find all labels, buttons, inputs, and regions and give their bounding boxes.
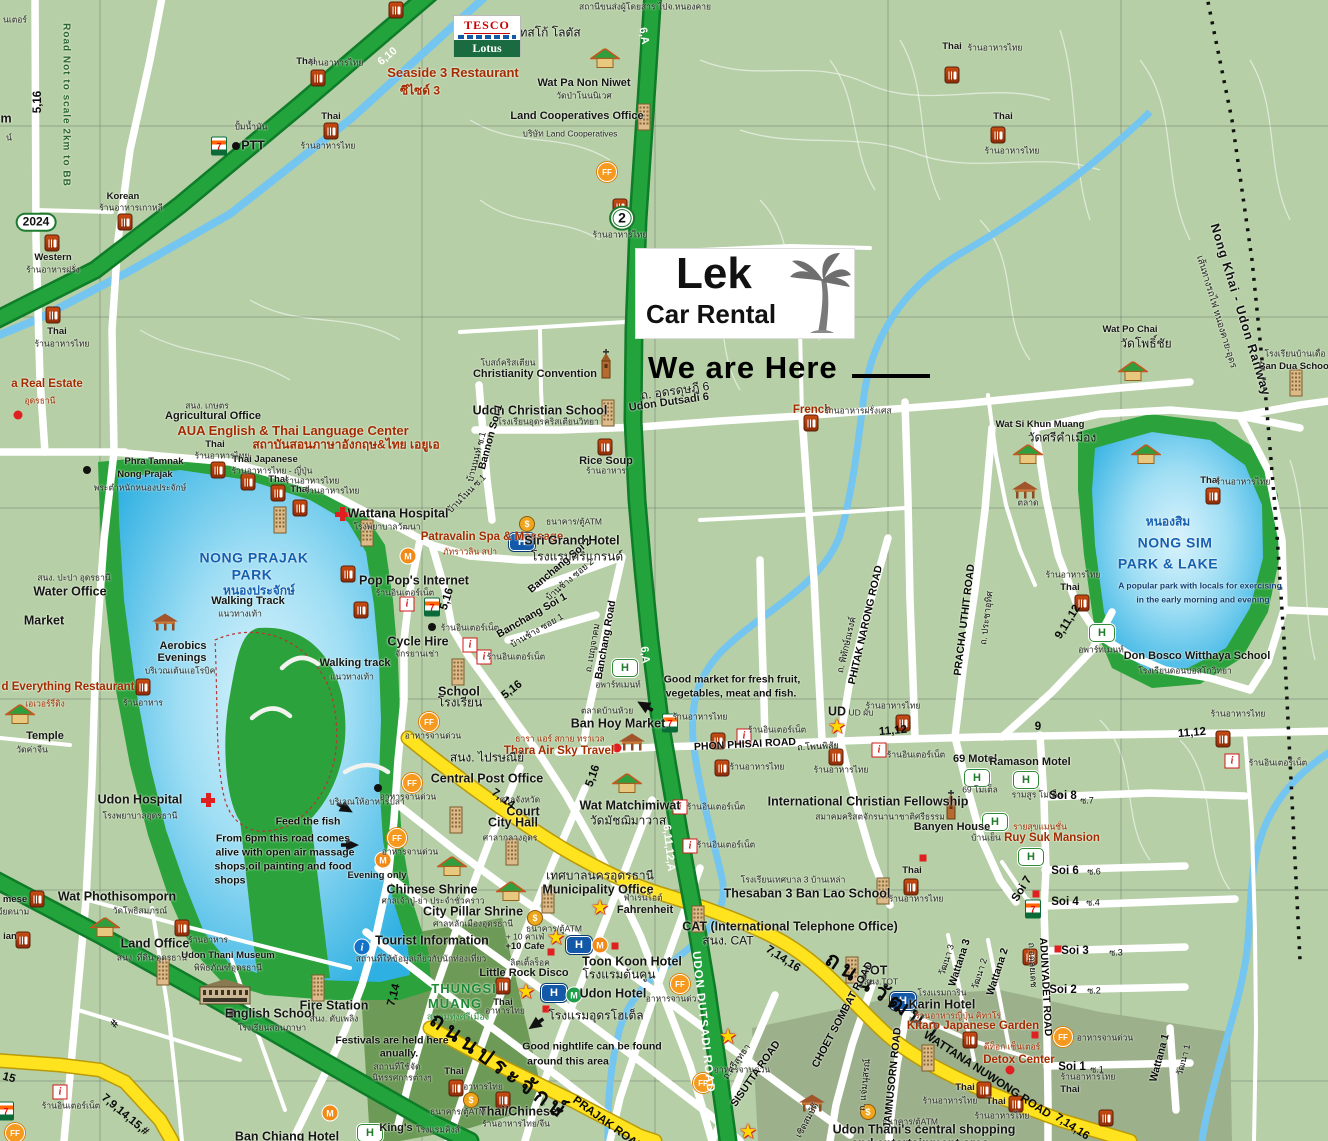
map-label: ซีไซด์ 3 <box>400 85 440 98</box>
map-label: Wattana 1 <box>1148 1033 1171 1083</box>
tesco-label: TESCO <box>464 18 510 34</box>
map-label: ถ.โพนพิสัย <box>797 741 839 753</box>
map-label: Wat Si Khun Muang <box>996 420 1085 430</box>
map-label: อาหารจานด่วน <box>405 732 462 741</box>
map-label: UD ผับ <box>848 709 873 718</box>
map-label: 5,16 <box>584 763 603 788</box>
map-label: 7,14,16 <box>764 943 803 974</box>
map-label: Soi 3 <box>1061 945 1088 957</box>
map-label: สนง. ดับเพลิง <box>310 1015 359 1024</box>
map-label: สนง. CAT <box>702 935 753 948</box>
map-label: ร้านอาหารไทย <box>866 702 921 711</box>
map-label: Soi 4 <box>1051 896 1078 908</box>
map-label: โรงแรมต้นคูน <box>582 969 655 982</box>
map-label: Christianity Convention <box>473 369 597 381</box>
we-are-here-underline <box>852 374 930 378</box>
map-label: Feed the fish <box>276 816 341 827</box>
map-label: ร้านอินเตอร์เน็ต <box>1249 759 1307 768</box>
map-label: โรงเรียนสอนภาษา <box>238 1024 306 1033</box>
map-label: PRAJAK ROAD <box>570 1094 645 1141</box>
map-label: ร้านอาหารไทย <box>730 763 785 772</box>
map-label: ร้านอาหารไทย <box>889 895 944 904</box>
map-label: ร้านอินเตอร์เน็ต <box>687 803 745 812</box>
map-label: ถ.อดุลยเดช <box>1026 942 1038 987</box>
map-label: ร้านอาหารฝรั่ง <box>26 266 80 275</box>
map-label: สนง. ไปรษณีย์ <box>450 752 524 765</box>
map-label: ร้านอาหารไทย <box>923 1097 978 1106</box>
map-label: 5,16 <box>438 586 456 611</box>
map-label: ร้านอาหารไทย <box>673 713 728 722</box>
map-label: alive with open air massage <box>216 847 355 858</box>
map-label: Kitaro Japanese Garden <box>907 1020 1039 1032</box>
map-label: ถ. ประชาอุทิศ <box>979 591 995 646</box>
map-label: ร้านอาหารไทย <box>35 340 90 349</box>
map-label: 11,12 <box>1177 726 1206 740</box>
map-label: ดีท็อก เซ็นเตอร์ <box>984 1043 1040 1052</box>
lek-car-rental-logo: Lek Car Rental <box>636 249 854 338</box>
map-label: Soi 8 <box>1049 790 1076 802</box>
map-label: King's <box>379 1123 412 1135</box>
map-label: ian <box>3 932 17 942</box>
map-label: shops <box>215 875 246 886</box>
map-label: around this area <box>527 1056 609 1067</box>
map-label: PTT <box>241 139 265 152</box>
map-label: Thai <box>1060 583 1080 593</box>
map-label: ซ.7 <box>1080 796 1094 805</box>
map-label: mese <box>3 895 27 905</box>
map-label: วัดป่าโนนนิเวศ <box>556 92 612 101</box>
map-label: UD <box>828 705 846 718</box>
map-label: 2 <box>609 206 635 231</box>
map-label: 69 โมเต็ล <box>962 786 998 795</box>
map-label: Thai <box>942 42 962 52</box>
map-label: Fahrenheit <box>617 905 673 917</box>
map-label: AUA English & Thai Language Center <box>177 424 408 438</box>
map-label: Udon Thani Museum <box>181 951 274 961</box>
map-label: Aerobics <box>159 641 206 653</box>
map-label: ธารา แอร์ สกาย ทราเวล <box>515 735 604 744</box>
map-label: โรงเรียนเทศบาล 3 บ้านเหล่า <box>741 876 846 885</box>
map-label: Water Office <box>33 585 106 598</box>
map-label: ร้านอินเตอร์เน็ต <box>376 589 434 598</box>
map-label: UDON DUTSADI ROAD <box>690 951 717 1094</box>
map-label: ร้านอาหารไทย <box>975 1112 1030 1121</box>
map-label: Thai <box>1060 1085 1080 1095</box>
map-label: 5,16 <box>32 91 44 113</box>
map-label: m <box>0 112 11 125</box>
map-label: ซ.2 <box>1087 986 1101 995</box>
map-label: From 6pm this road comes <box>216 833 350 844</box>
map-label: โรงเรียน <box>438 697 483 710</box>
map-label: Ban Chiang Hotel <box>235 1130 339 1141</box>
map-label: ร้านอินเตอร์เน็ต <box>42 1102 100 1111</box>
palm-tree-icon <box>788 251 852 336</box>
tesco-dashes <box>458 35 516 39</box>
map-label: ตลาด <box>1017 499 1038 508</box>
map-label: ร้านอาหาร <box>123 699 163 708</box>
map-label: รายสุขแมนชั่น <box>1013 823 1067 832</box>
map-label: 6,A <box>636 27 650 46</box>
map-label: Little Rock Disco <box>479 968 568 980</box>
map-label: อาหารจานด่วน <box>382 848 439 857</box>
map-label: Wat Pa Non Niwet <box>537 78 630 90</box>
map-label: ซ.4 <box>1086 898 1100 907</box>
map-label: โรงเรียนอุดรคริสเตียนวิทยา <box>497 418 599 427</box>
map-label: d Everything Restaurant <box>2 681 135 693</box>
map-label: สนง. เกษตร <box>185 402 229 411</box>
map-label: Western <box>34 253 71 263</box>
map-label: ร้านอาหารไทย <box>1046 571 1101 580</box>
map-label: บริษัท Land Cooperatives <box>523 130 618 139</box>
map-label: บ้านเย็น <box>971 834 1001 843</box>
map-label: ร้านอินเตอร์เน็ต <box>887 751 945 760</box>
map-label: อาหารจานด่วน <box>1077 1034 1134 1043</box>
map-label: Siri Grand Hotel <box>524 534 619 547</box>
map-label: Thai <box>955 1083 975 1093</box>
map-label: Market <box>24 614 64 627</box>
map-label: in the early morning and evening <box>1136 596 1269 605</box>
map-label: สถานที่ให้ข้อมูลเกี่ยวกับนักท่องเที่ยว <box>356 955 486 964</box>
map-label: 5,16 <box>499 678 524 701</box>
map-label: สถาบันสอนภาษาอังกฤษ&ไทย เอยูเอ <box>252 439 439 452</box>
map-label: Walking track <box>319 658 390 670</box>
map-label: Central Post Office <box>431 772 544 785</box>
map-label: Fire Station <box>300 999 369 1012</box>
map-label: Wattana Hospital <box>348 507 449 520</box>
map-label: Wat Phothisomporn <box>58 890 176 903</box>
map-label: ซ.6 <box>1087 867 1101 876</box>
map-label: โรงแรมการิน <box>917 989 966 998</box>
map-label: Thai <box>993 112 1013 122</box>
map-label: vegetables, meat and fish. <box>666 688 797 699</box>
map-label: Toon Koon Hotel <box>582 955 682 968</box>
map-label: 11,12 <box>878 724 907 738</box>
map-label: ร้านอาหารไทย/จีน <box>482 1120 550 1129</box>
map-label: เทศบาลนครอุดรธานี <box>546 870 654 883</box>
map-label: Udon Thani's central shopping <box>833 1123 1016 1136</box>
map-label: 7,14 <box>385 983 402 1008</box>
map-label: Nong Prajak <box>117 470 172 480</box>
map-label: แนวทางเท้า <box>218 610 262 619</box>
map-label: Tourist Information <box>375 934 489 947</box>
map-label: ซ.3 <box>1109 948 1123 957</box>
map-label: ร้านอินเตอร์เน็ต <box>697 841 755 850</box>
map-label: ร้านอาหารไทย <box>1061 1073 1116 1082</box>
map-label: Good market for fresh fruit, <box>664 674 801 685</box>
map-label: shops,oil painting and food <box>214 861 351 872</box>
map-label: Road Not to scale 2km to BB <box>60 23 71 187</box>
map-label: Udon Hospital <box>98 793 183 806</box>
map-label: ADUNYADET ROAD <box>1037 937 1053 1036</box>
map-canvas: iiiiiiiii77777HHHHHHHHHHHMMMMMFFFFFFFFFF… <box>0 0 1328 1141</box>
map-label: เวียดนาม <box>0 908 29 917</box>
map-label: 9,11,12 <box>1053 603 1083 641</box>
map-label: โรงแรมคิงส์ <box>416 1126 460 1135</box>
map-label: ถ. แจ่มนุสรณ์ <box>858 1059 873 1112</box>
map-label: Walking Track <box>211 596 285 608</box>
map-label: วัดโพธิ์ชัย <box>1120 338 1171 351</box>
map-label: ธนาคาร/ตู้ATM <box>430 1108 486 1117</box>
map-label: Festivals are held here <box>335 1035 448 1046</box>
map-label: ร้านอาหารฝรั่งเศส <box>824 407 891 416</box>
map-label: City Hall <box>488 816 538 829</box>
map-label: โบสถ์คริสเตียน <box>481 359 536 368</box>
map-label: พิพิธภัณฑ์อุดรธานี <box>194 964 262 973</box>
map-label: วัดศรีคำเมือง <box>1028 432 1096 445</box>
map-label: ร้านอาหารไทย <box>309 59 364 68</box>
map-label: Thai <box>444 1067 464 1077</box>
map-label: แนวทางเท้า <box>330 673 374 682</box>
map-label: ลิตเติ้ลร็อค <box>510 959 550 968</box>
map-label: +10 Cafe <box>505 942 544 952</box>
map-label: Thai <box>321 112 341 122</box>
map-label: Temple <box>26 731 64 743</box>
map-label: NONG PRAJAK <box>200 551 309 566</box>
map-label: 9 <box>1035 721 1041 733</box>
map-label: ร้านอาหาร <box>586 467 626 476</box>
map-label: Cycle Hire <box>387 635 448 648</box>
we-are-here-label: We are Here <box>648 350 930 386</box>
map-label: Soi 1 <box>1058 1061 1085 1073</box>
lek-logo-title: Lek <box>676 249 752 299</box>
map-label: สถานที่ใช้จัด <box>374 1063 421 1072</box>
map-label: ร้านอาหารไทย <box>1211 710 1266 719</box>
map-label: Thai <box>902 866 922 876</box>
map-label: City Pillar Shrine <box>423 905 523 918</box>
map-label: ร้านอินเตอร์เน็ต <box>748 726 806 735</box>
map-label: ตลาดบ้านห้วย <box>581 707 633 716</box>
map-label: วัดค่าจีน <box>16 746 48 755</box>
map-label: Land Office <box>121 937 190 950</box>
map-label: ร้านอาหารไทย <box>968 44 1023 53</box>
map-label: 15 <box>1 1071 16 1086</box>
map-label: anually. <box>380 1048 418 1059</box>
lotus-label: Lotus <box>454 40 520 57</box>
map-label: PARK <box>232 568 273 583</box>
map-label: Korean <box>107 192 140 202</box>
map-label: ร้านอาหารไทย <box>814 766 869 775</box>
map-label: ร้านอาหารไทย <box>593 231 648 240</box>
map-label: 7,14,16 <box>1053 1111 1092 1141</box>
map-label: Seaside 3 Restaurant <box>387 66 519 80</box>
map-label: Soi 7 <box>1010 874 1035 904</box>
map-label: 6,11,12,A <box>660 824 676 872</box>
map-label: Agricultural Office <box>165 411 261 423</box>
map-label: Wattana 2 <box>985 947 1011 997</box>
map-label: ฟ่าเรนไฮต์ <box>623 894 662 903</box>
map-label: 6,A <box>637 646 650 664</box>
map-label: Pop Pop's Internet <box>359 574 469 587</box>
map-label: Land Cooperatives Office <box>510 111 643 123</box>
map-label: Thai Japanese <box>232 455 297 465</box>
map-label: ธนาคาร/ตู้ATM <box>546 518 602 527</box>
map-label: Ban Dua School <box>1259 362 1328 372</box>
map-label: สนง.TOT <box>864 978 898 987</box>
map-label: สนง. ที่ดิน อุดรธานี <box>117 954 187 963</box>
map-label: ถ. เชิดสมบัติ <box>789 1101 820 1141</box>
map-label: Thai <box>205 440 225 450</box>
map-label: วัดมัชฌิมาวาส <box>590 815 666 828</box>
map-labels-layer: นเตอร์สถานีขนส่งผู้โดยสาร ไปจ.หนองคายเทส… <box>0 0 1328 1141</box>
map-label: อพาร์ทเมนท์ <box>595 681 641 690</box>
map-label: สนง. ปะปา อุดรธานี <box>37 574 110 583</box>
map-label: ร้านอินเตอร์เน็ต <box>487 653 545 662</box>
map-label: ซ.1 <box>1090 1065 1104 1074</box>
lek-logo-subtitle: Car Rental <box>646 299 776 330</box>
map-label: อพาร์ทเมนท์ <box>1078 646 1124 655</box>
map-label: ภัทราวลิน สปา <box>443 548 497 557</box>
map-label: โรงพยาบาลวัฒนา <box>353 523 420 532</box>
map-label: Soi 6 <box>1051 865 1078 877</box>
map-label: # <box>108 1018 121 1031</box>
map-label: Don Bosco Witthaya School <box>1124 651 1271 663</box>
map-label: โรงแรมอุดรโฮเต็ล <box>548 1010 643 1023</box>
map-label: ร้านอาหารไทย <box>1216 478 1271 487</box>
map-label: NONG SIM <box>1138 536 1213 551</box>
map-label: น์ <box>6 134 12 143</box>
map-label: ปั้มน้ำมัน <box>235 123 268 132</box>
map-label: 2024 <box>16 213 57 232</box>
map-label: 7,9,14,15,# <box>99 1092 151 1138</box>
map-label: Evenings <box>158 653 207 665</box>
map-label: วัฒนา 1 <box>1175 1043 1192 1076</box>
map-label: Ban Hoy Market <box>571 717 665 730</box>
map-label: เอเวอร์รี่ดิง <box>25 700 65 709</box>
map-label: ร้านอาหาร <box>188 936 228 945</box>
map-label: PHON PHISAI ROAD <box>694 737 797 753</box>
map-label: Udon Hotel <box>580 987 647 1000</box>
map-label: เทสโก้ โลตัส <box>515 27 580 40</box>
map-label: ศาลหลักเมืองอุดรธานี <box>433 920 513 929</box>
map-label: Detox Center <box>983 1054 1055 1066</box>
map-label: Wat Po Chai <box>1102 325 1157 335</box>
map-label: ร้านอินเตอร์เน็ต <box>441 624 499 633</box>
map-label: PARK & LAKE <box>1118 557 1218 572</box>
map-label: International Christian Fellowship <box>768 795 969 808</box>
map-label: and entertainment area <box>851 1137 989 1141</box>
map-label: สมาคมคริสตจักรนานาชาติศรีธรรม <box>815 813 945 822</box>
map-label: อาหารไทย <box>463 1083 503 1092</box>
map-label: นเตอร์ <box>3 16 27 25</box>
map-label: Phra Tamnak <box>125 457 184 467</box>
map-label: หนองสิม <box>1146 516 1190 529</box>
map-label: THUNGSI <box>431 982 497 996</box>
map-label: พระตำหนักหนองประจักษ์ <box>94 484 187 493</box>
tesco-lotus-sign: TESCO Lotus <box>453 15 521 57</box>
map-label: A popular park with locals for exercisin… <box>1118 582 1282 591</box>
we-are-here-text: We are Here <box>648 350 838 385</box>
map-label: Ramason Motel <box>989 757 1070 769</box>
map-label: Evening only <box>347 871 406 881</box>
map-label: โรงพยาบาลอุดรธานี <box>103 812 178 821</box>
map-label: Thai <box>986 1097 1006 1107</box>
map-label: ร้านอาหารไทย <box>985 147 1040 156</box>
map-label: ศาลากลางอุดร <box>483 834 538 843</box>
map-label: 7, 14 <box>489 787 517 812</box>
map-label: อาหารไทย <box>485 1007 525 1016</box>
map-label: อาหารจานด่วน <box>380 793 437 802</box>
map-label: อุดรธานี <box>25 397 56 406</box>
map-label: MUANG <box>428 997 482 1011</box>
map-label: Good nightlife can be found <box>522 1041 661 1052</box>
map-label: JAMNUSORN ROAD <box>882 1027 904 1129</box>
map-label: ร้านอาหารไทย <box>305 487 360 496</box>
map-label: CAT (International Telephone Office) <box>682 920 898 933</box>
map-label: Soi 2 <box>1049 984 1076 996</box>
map-label: Thesaban 3 Ban Lao School <box>724 887 891 900</box>
map-label: จักรยานเช่า <box>395 650 439 659</box>
map-label: a Real Estate <box>11 378 83 390</box>
map-label: Thai <box>47 327 67 337</box>
map-label: PRACHA UTHIT ROAD <box>953 564 978 677</box>
map-label: บริเวณเต้นแอโรบิค <box>145 667 216 676</box>
map-label: โรงเรียนบ้านเดื่อ <box>1264 350 1325 359</box>
map-label: ร้านอาหารไทย <box>301 142 356 151</box>
map-label: ร้านอาหารเกาหลี <box>99 204 163 213</box>
map-label: Ruy Suk Mansion <box>1004 832 1100 844</box>
map-label: วัดโพธิสมภรณ์ <box>113 907 168 916</box>
map-label: สถานีขนส่งผู้โดยสาร ไปจ.หนองคาย <box>579 3 711 12</box>
map-label: Wat Matchimiwat <box>580 799 681 812</box>
map-label: โรงเรียนดอนบอสโกวิทยา <box>1138 667 1232 676</box>
map-label: นิทรรศการต่างๆ <box>372 1074 431 1083</box>
